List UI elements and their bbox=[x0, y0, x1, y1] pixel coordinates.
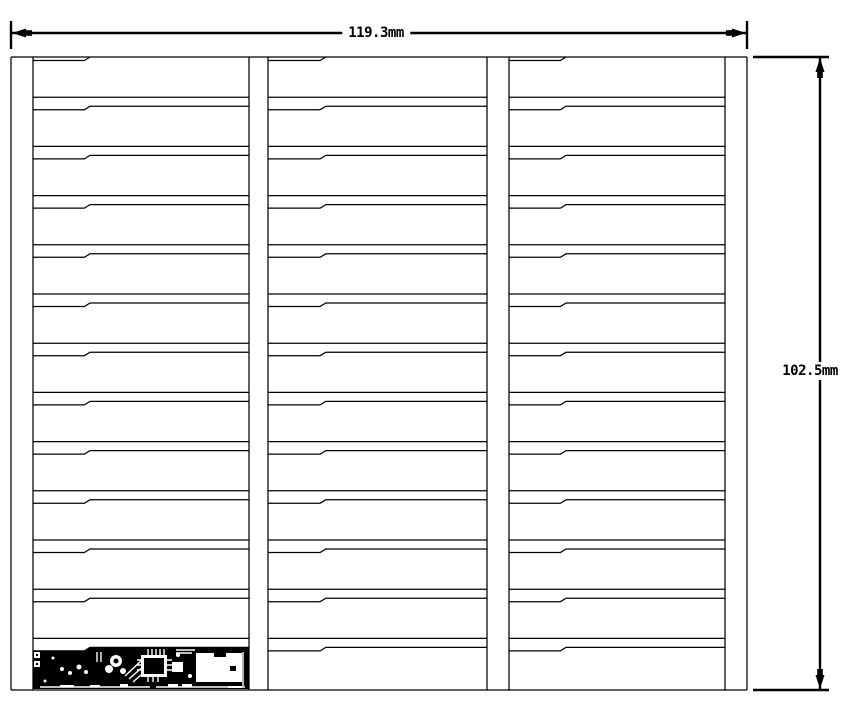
dimension-arrows bbox=[12, 29, 825, 690]
height-dimension-label: 102.5mm bbox=[776, 362, 844, 380]
panel-linework bbox=[11, 57, 747, 690]
panel-drawing bbox=[0, 0, 851, 704]
width-dimension-label: 119.3mm bbox=[342, 24, 410, 42]
arrow-right-icon bbox=[732, 29, 746, 38]
arrow-left-icon bbox=[12, 29, 26, 38]
cad-drawing-canvas: 119.3mm 102.5mm bbox=[0, 0, 851, 704]
pcb-image bbox=[33, 648, 249, 689]
arrow-up-icon bbox=[816, 58, 825, 72]
arrow-down-icon bbox=[816, 675, 825, 689]
